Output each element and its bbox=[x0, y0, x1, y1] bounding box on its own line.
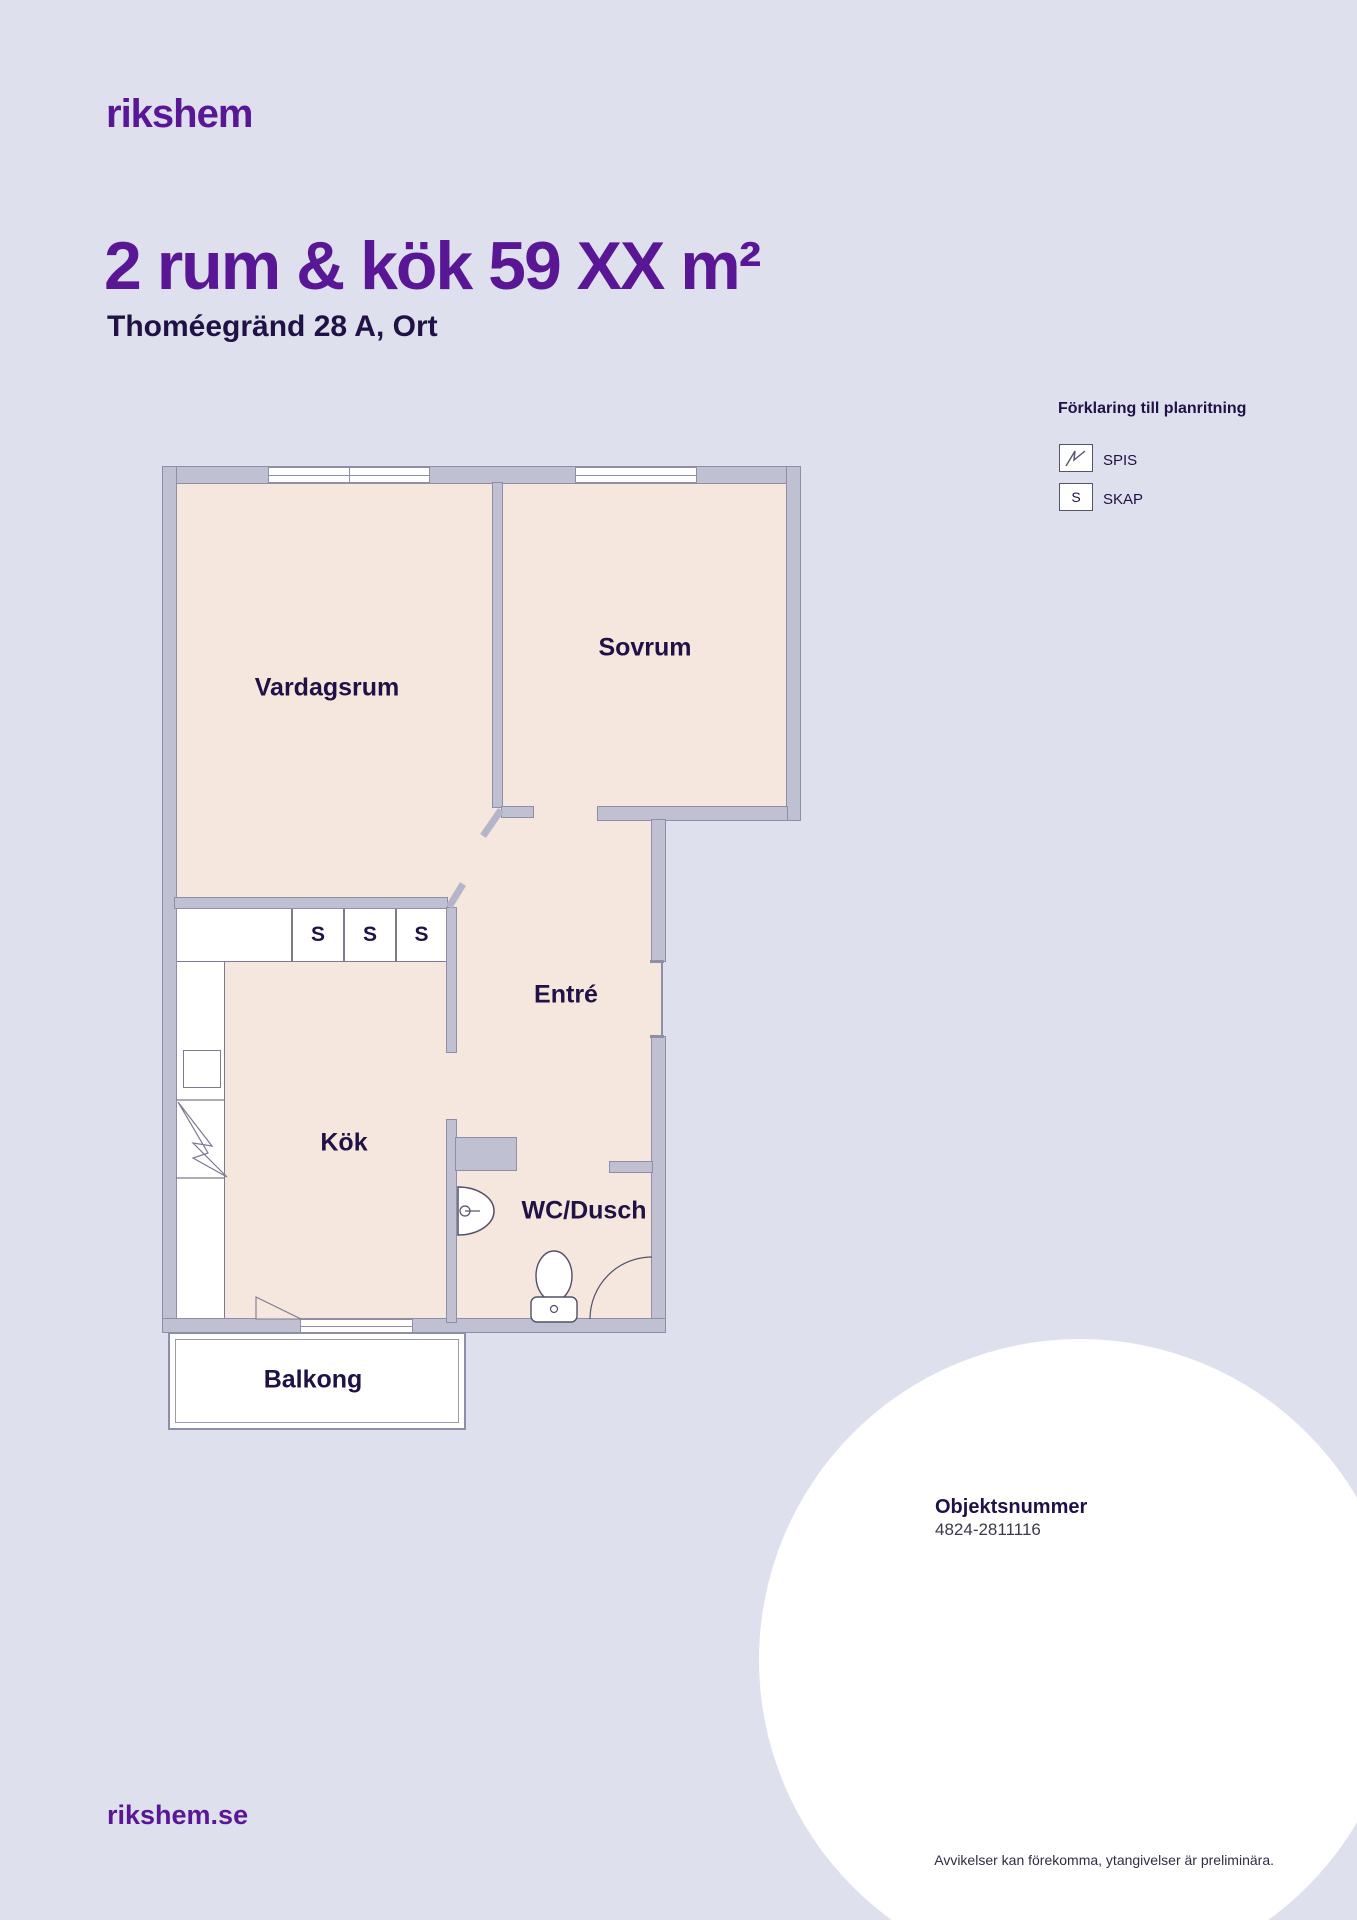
room-label-bath: WC/Dusch bbox=[522, 1197, 647, 1226]
bath-sink-icon bbox=[458, 1187, 494, 1235]
door-swing-kitchen bbox=[449, 884, 463, 907]
website-link: rikshem.se bbox=[107, 1800, 248, 1831]
room-label-kitchen: Kök bbox=[320, 1129, 367, 1158]
object-number-value: 4824-2811116 bbox=[935, 1520, 1041, 1540]
room-label-balcony: Balkong bbox=[264, 1366, 363, 1395]
object-number-heading: Objektsnummer bbox=[935, 1496, 1087, 1519]
disclaimer-text: Avvikelser kan förekomma, ytangivelser ä… bbox=[934, 1852, 1274, 1868]
stove-icon bbox=[176, 1100, 227, 1178]
toilet-icon bbox=[531, 1251, 577, 1322]
page: rikshem 2 rum & kök 59 XX m² Thoméegränd… bbox=[0, 0, 1357, 1920]
room-label-entry: Entré bbox=[534, 981, 598, 1010]
door-swing-balcony bbox=[256, 1297, 301, 1319]
room-label-living: Vardagsrum bbox=[255, 674, 400, 703]
door-swing-bedroom bbox=[483, 810, 501, 836]
room-label-bedroom: Sovrum bbox=[598, 634, 691, 663]
shower-arc-icon bbox=[590, 1257, 652, 1319]
